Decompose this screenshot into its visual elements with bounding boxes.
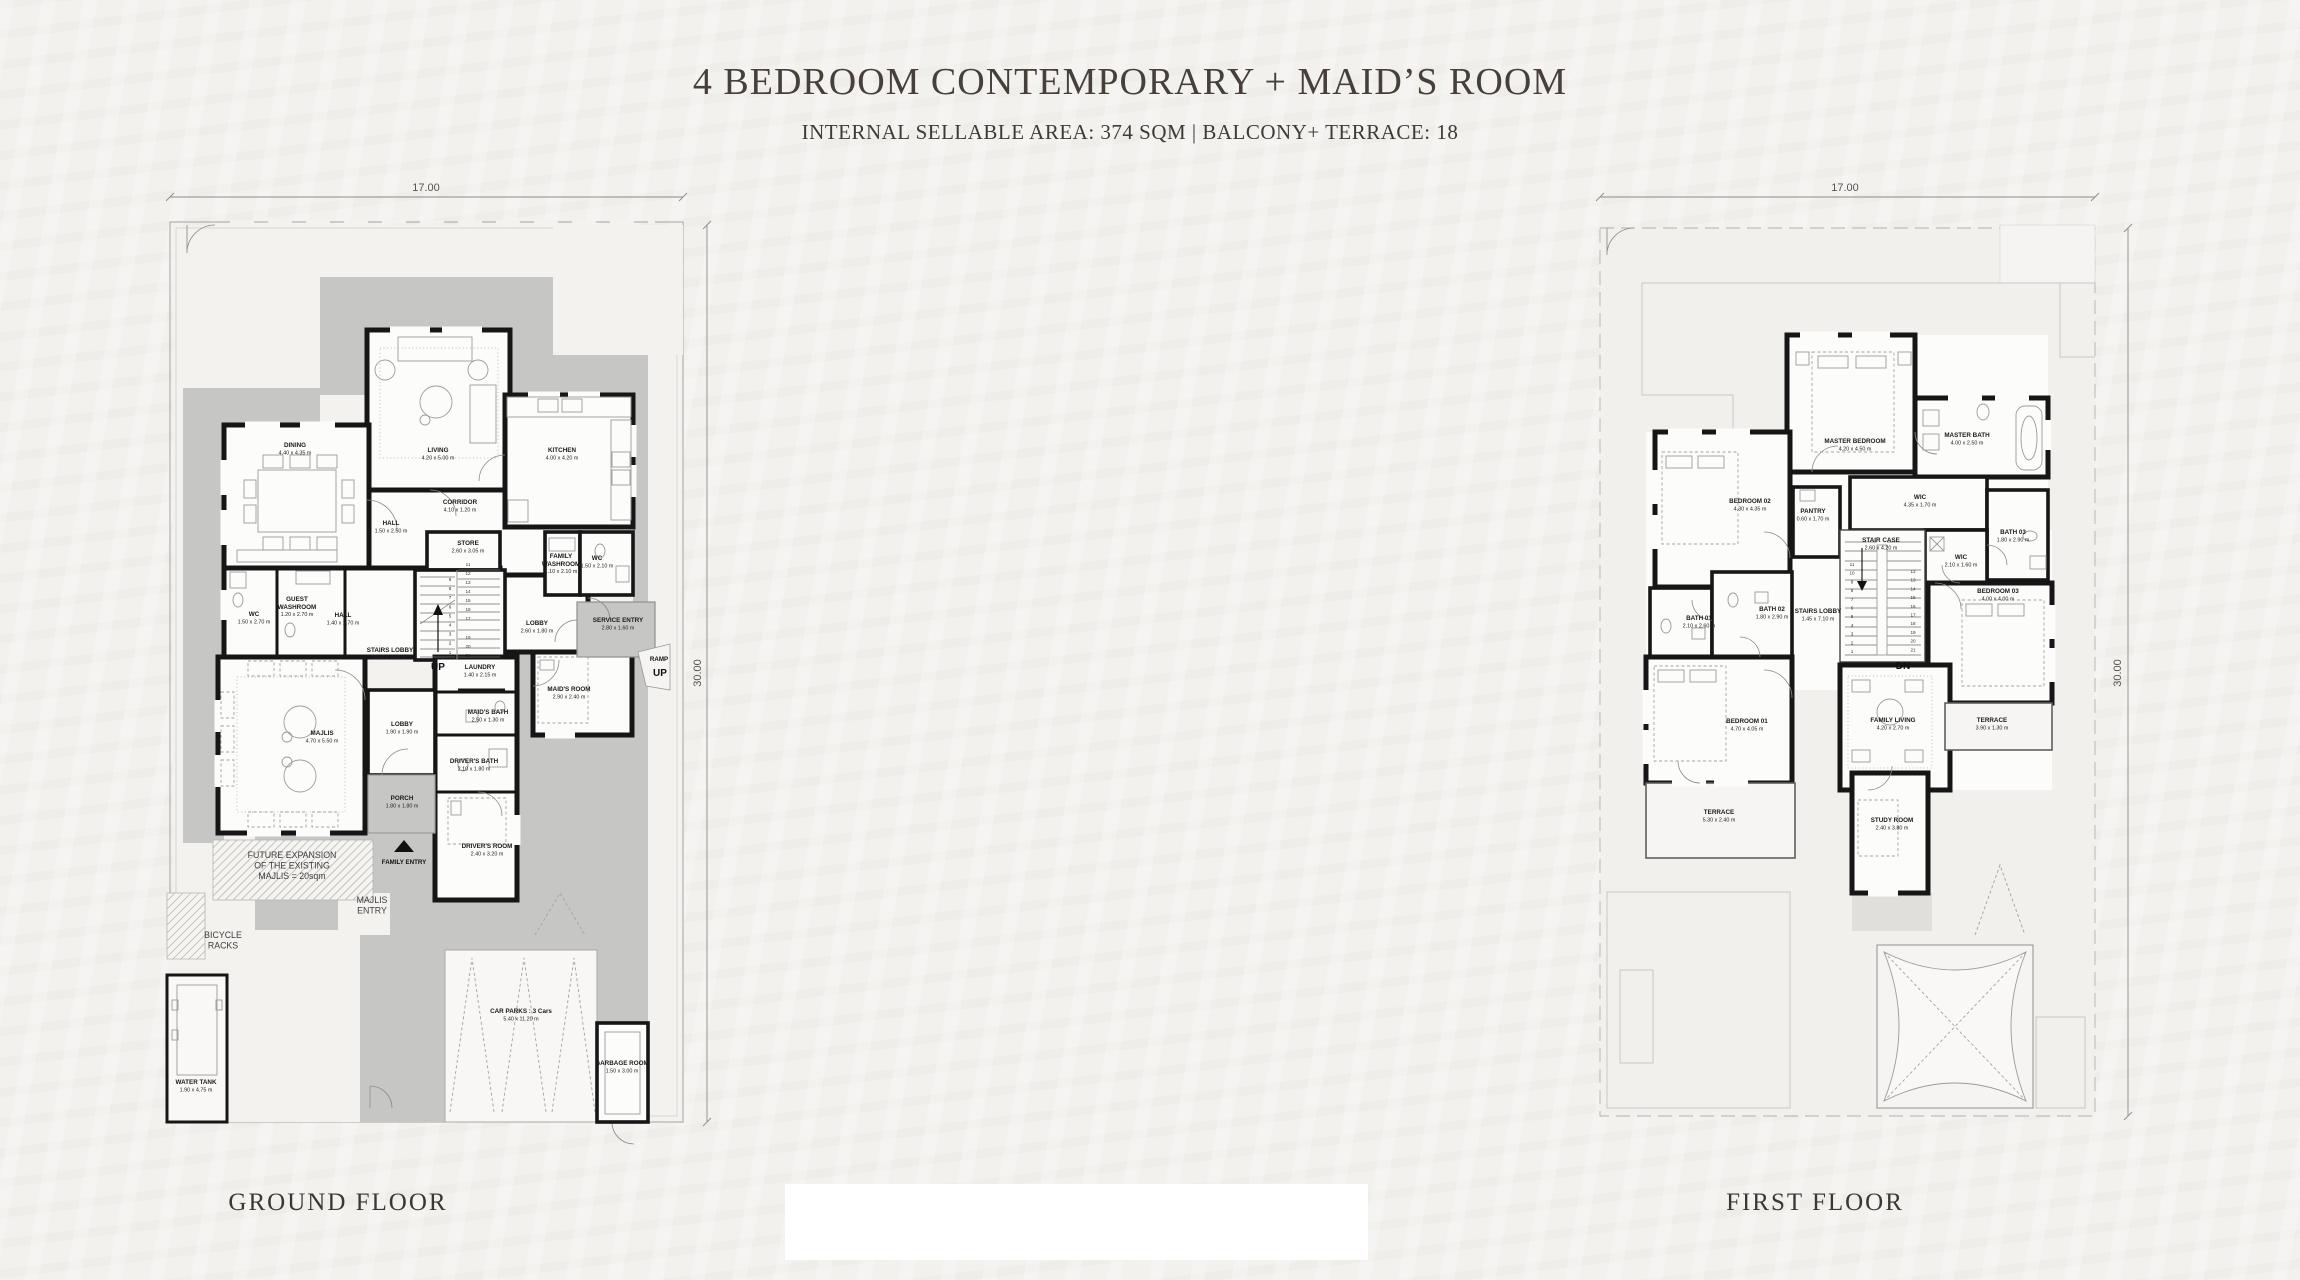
- stair-number: 9: [449, 577, 452, 582]
- stair-number: 21: [1910, 647, 1916, 652]
- stair-number: 12: [465, 571, 471, 576]
- stair-number: 4: [1851, 623, 1854, 628]
- stair-number: 19: [465, 635, 471, 640]
- page-subtitle: INTERNAL SELLABLE AREA: 374 SQM | BALCON…: [0, 120, 2260, 145]
- room-bedroom-02: [1655, 432, 1790, 587]
- stair-number: 17: [465, 616, 471, 621]
- stair-number: 21: [465, 653, 471, 658]
- dimension-label: 17.00: [1831, 182, 1859, 194]
- dimension-label: 30.00: [2112, 659, 2124, 687]
- stair-number: 14: [465, 589, 471, 594]
- stair-number: 13: [1910, 578, 1916, 583]
- water-tank: [167, 975, 227, 1122]
- stair-number: 8: [449, 586, 452, 591]
- plan-label: UP: [653, 668, 667, 679]
- stair-number: 7: [449, 595, 452, 600]
- room-bedroom-01: [1646, 657, 1792, 783]
- stair-number: 20: [1910, 639, 1916, 644]
- stair-number: 6: [449, 604, 452, 609]
- stair-number: 7: [1851, 597, 1854, 602]
- plan-label: RAMP: [650, 656, 668, 663]
- stair-number: 3: [1851, 632, 1854, 637]
- stair-number: 4: [449, 623, 452, 628]
- stair-number: 8: [1851, 588, 1854, 593]
- stair-number: 16: [1910, 604, 1916, 609]
- stair-number: 2: [1851, 640, 1854, 645]
- stair-number: 20: [465, 644, 471, 649]
- ground-floor-plan: DINING4.40 x 4.35 mLIVING4.20 x 5.00 mCO…: [150, 160, 730, 1175]
- stair-number: 18: [1910, 621, 1916, 626]
- stair-number: 13: [465, 580, 471, 585]
- stair-number: 5: [449, 613, 452, 618]
- floorplan-sheet: { "page": { "title": "4 BEDROOM CONTEMPO…: [0, 0, 2300, 1280]
- stair-number: 11: [1850, 562, 1855, 567]
- dimension-label: 17.00: [412, 182, 440, 194]
- room-living: [367, 330, 510, 490]
- plan-label: UP: [431, 662, 445, 673]
- canopy: [1877, 945, 2033, 1108]
- plan-label: FAMILY ENTRY: [382, 859, 427, 866]
- plan-label: BICYCLERACKS: [204, 930, 242, 951]
- room-majlis: [218, 657, 365, 833]
- dimension-label: 30.00: [692, 659, 704, 687]
- stair-number: 9: [1851, 579, 1854, 584]
- stair-number: 2: [449, 641, 452, 646]
- logo-placeholder-box: [785, 1184, 1368, 1260]
- stair-number: 1: [1851, 649, 1854, 654]
- stair-number: 15: [1910, 595, 1916, 600]
- first-floor-plan: MASTER BEDROOM4.20 x 4.50 mMASTER BATH4.…: [1580, 160, 2160, 1175]
- plan-label: DN: [1896, 661, 1910, 672]
- stair-number: 11: [466, 562, 471, 567]
- stair-number: 16: [465, 607, 471, 612]
- stair-number: 12: [1910, 569, 1916, 574]
- stair-number: 3: [449, 632, 452, 637]
- stair-number: 19: [1910, 630, 1916, 635]
- room-stairs: [415, 570, 505, 660]
- stair-number: 6: [1851, 606, 1854, 611]
- ground-floor-caption: GROUND FLOOR: [228, 1189, 447, 1217]
- page-title: 4 BEDROOM CONTEMPORARY + MAID’S ROOM: [0, 60, 2260, 104]
- plan-label: FUTURE EXPANSIONOF THE EXISTINGMAJLIS = …: [248, 850, 337, 881]
- stair-number: 14: [1910, 586, 1916, 591]
- stair-number: 15: [465, 598, 471, 603]
- stair-number: 17: [1910, 613, 1916, 618]
- stair-number: 5: [1851, 614, 1854, 619]
- plan-label: MAJLISENTRY: [357, 895, 388, 916]
- stair-number: 10: [1849, 571, 1855, 576]
- stair-number: 1: [449, 650, 452, 655]
- first-floor-caption: FIRST FLOOR: [1726, 1189, 1904, 1217]
